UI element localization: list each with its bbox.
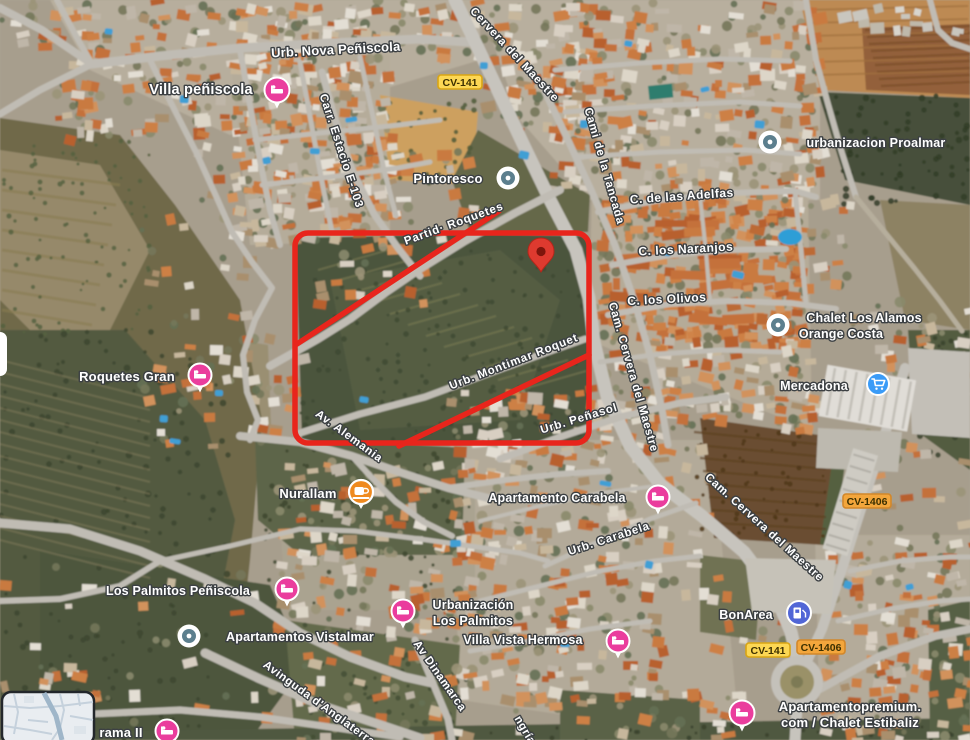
svg-text:BonArea: BonArea	[719, 608, 773, 622]
svg-text:Chalet Los Alamos: Chalet Los Alamos	[806, 311, 921, 325]
svg-text:rama II: rama II	[99, 725, 142, 740]
svg-text:CV-141: CV-141	[750, 645, 785, 657]
svg-text:urbanizacion Proalmar: urbanizacion Proalmar	[807, 136, 946, 150]
svg-text:com / Chalet Estibaliz: com / Chalet Estibaliz	[781, 715, 919, 730]
svg-text:Pintoresco: Pintoresco	[413, 171, 482, 186]
svg-text:Orange Costa: Orange Costa	[799, 327, 884, 341]
svg-text:Roquetes Gran: Roquetes Gran	[79, 369, 175, 384]
svg-text:CV-1406: CV-1406	[847, 496, 888, 508]
svg-text:Apartamentos Vistalmar: Apartamentos Vistalmar	[226, 630, 374, 644]
svg-text:Los Palmitos: Los Palmitos	[433, 614, 513, 628]
svg-text:CV-1406: CV-1406	[801, 642, 842, 654]
svg-text:Nurallam: Nurallam	[279, 486, 336, 501]
svg-text:Los Palmitos Peñiscola: Los Palmitos Peñiscola	[106, 584, 251, 598]
svg-text:Urbanización: Urbanización	[433, 598, 514, 612]
svg-text:Mercadona: Mercadona	[780, 379, 849, 393]
svg-text:Apartamentopremium.: Apartamentopremium.	[779, 699, 922, 714]
svg-text:CV-141: CV-141	[442, 77, 477, 89]
svg-text:Apartamento Carabela: Apartamento Carabela	[488, 491, 626, 505]
svg-text:Villa Vista Hermosa: Villa Vista Hermosa	[463, 633, 583, 647]
svg-text:Villa peñiscola: Villa peñiscola	[149, 82, 253, 98]
